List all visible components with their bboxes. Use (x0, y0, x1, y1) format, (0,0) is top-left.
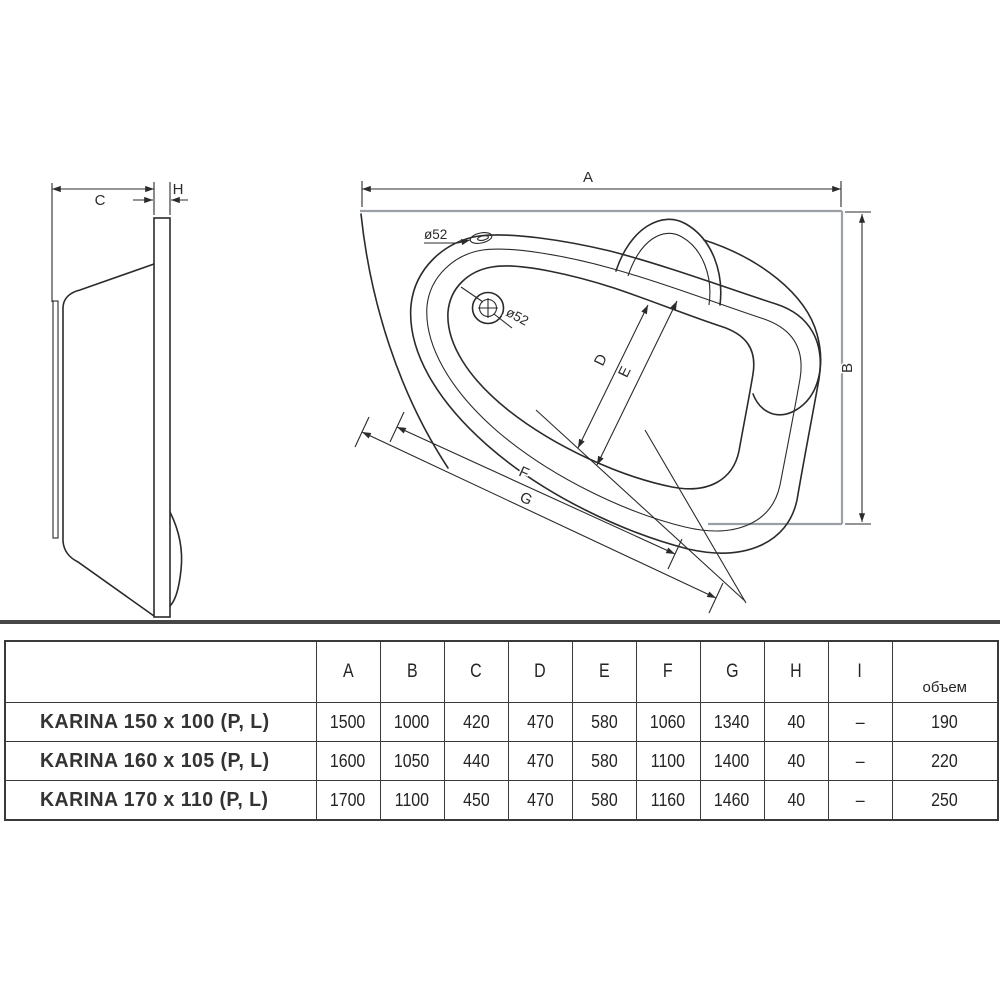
col-header-c: C (444, 641, 508, 703)
side-view-lip (53, 301, 58, 538)
col-header-e: E (572, 641, 636, 703)
dim-line-g (362, 432, 716, 598)
side-view-tub-profile (63, 264, 154, 616)
col-header-g: G (700, 641, 764, 703)
section-divider (0, 620, 1000, 624)
table-header-row: A B C D E F G H I объем (5, 641, 998, 703)
dim-label-b: B (839, 363, 856, 373)
table-row: KARINA 160 x 105 (P, L) 1600 1050 440 47… (5, 742, 998, 781)
top-view: A B (355, 169, 871, 613)
model-name: KARINA 170 x 110 (P, L) (5, 781, 316, 821)
overflow-diameter-label: ø52 (424, 227, 447, 242)
dim-line-d (578, 305, 648, 448)
corner-shelf (704, 240, 821, 415)
dim-label-d: D (591, 351, 611, 368)
table-row: KARINA 150 x 100 (P, L) 1500 1000 420 47… (5, 703, 998, 742)
col-header-volume: объем (892, 641, 998, 703)
side-view-bulge (170, 512, 182, 606)
col-header-f: F (636, 641, 700, 703)
dim-label-h: H (173, 181, 184, 198)
col-header-i: I (828, 641, 892, 703)
side-view: C H (52, 181, 188, 617)
apron-edge (645, 430, 746, 603)
dim-line-f (397, 427, 675, 554)
header-empty (5, 641, 316, 703)
reference-line (536, 410, 745, 601)
model-name: KARINA 150 x 100 (P, L) (5, 703, 316, 742)
table-row: KARINA 170 x 110 (P, L) 1700 1100 450 47… (5, 781, 998, 821)
dim-label-e: E (615, 364, 635, 380)
headrest-outer (616, 219, 721, 305)
side-view-panel (154, 218, 170, 617)
col-header-d: D (508, 641, 572, 703)
tub-outer-rim (411, 235, 821, 553)
dimension-table: A B C D E F G H I объем KARINA 150 x 100… (4, 640, 999, 821)
col-header-h: H (764, 641, 828, 703)
dim-line-e (597, 301, 677, 465)
col-header-b: B (380, 641, 444, 703)
dim-label-c: C (95, 192, 106, 209)
overflow-hole (469, 231, 493, 245)
spec-sheet-page: C H A (0, 0, 1000, 1000)
dim-label-a: A (583, 169, 593, 186)
col-header-a: A (316, 641, 380, 703)
technical-drawing: C H A (0, 0, 1000, 620)
dim-label-f: F (516, 463, 531, 482)
model-name: KARINA 160 x 105 (P, L) (5, 742, 316, 781)
